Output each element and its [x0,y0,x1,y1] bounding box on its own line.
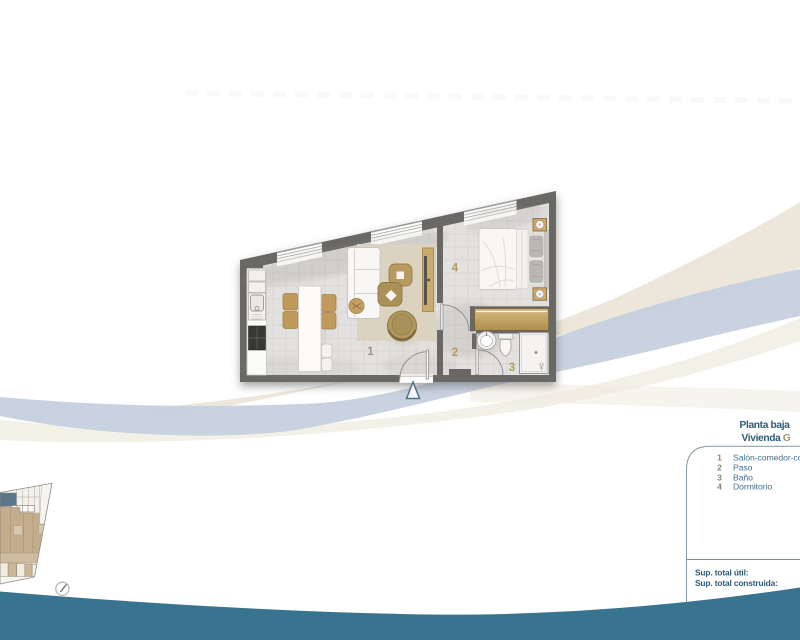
svg-text:Salón-comedor-cocina: Salón-comedor-cocina [733,453,800,463]
svg-text:Sup. total construida:: Sup. total construida: [695,578,778,588]
svg-text:Vivienda G: Vivienda G [742,433,791,444]
svg-text:Dormitorio: Dormitorio [733,482,772,492]
svg-text:Planta baja: Planta baja [740,420,791,431]
svg-text:2: 2 [452,347,458,359]
svg-text:Sup. total útil:: Sup. total útil: [695,568,748,578]
svg-text:4: 4 [452,263,459,275]
svg-text:1: 1 [367,346,374,358]
svg-text:4: 4 [717,482,722,492]
svg-text:Paso: Paso [733,462,753,472]
svg-text:3: 3 [509,362,515,374]
svg-text:1: 1 [717,453,722,463]
svg-text:2: 2 [717,462,722,472]
